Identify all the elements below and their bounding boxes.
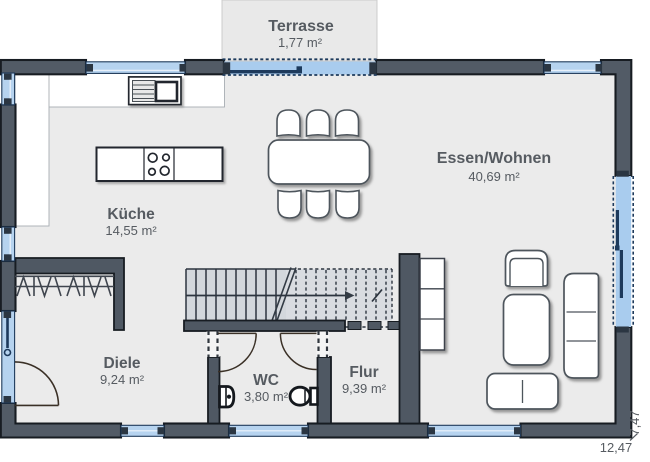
svg-text:WC: WC: [253, 372, 279, 389]
svg-text:12,47: 12,47: [600, 440, 633, 455]
svg-text:Flur: Flur: [349, 364, 378, 381]
svg-text:Küche: Küche: [107, 206, 155, 223]
svg-text:9,39 m²: 9,39 m²: [342, 381, 387, 396]
svg-text:1,77 m²: 1,77 m²: [278, 35, 323, 50]
svg-text:Terrasse: Terrasse: [268, 18, 334, 35]
svg-text:7,47: 7,47: [627, 410, 642, 435]
svg-text:40,69 m²: 40,69 m²: [468, 169, 520, 184]
svg-text:9,24 m²: 9,24 m²: [100, 372, 145, 387]
svg-text:Essen/Wohnen: Essen/Wohnen: [437, 150, 551, 167]
svg-text:Diele: Diele: [103, 355, 140, 372]
svg-text:14,55 m²: 14,55 m²: [105, 223, 157, 238]
svg-text:3,80 m²: 3,80 m²: [244, 389, 289, 404]
